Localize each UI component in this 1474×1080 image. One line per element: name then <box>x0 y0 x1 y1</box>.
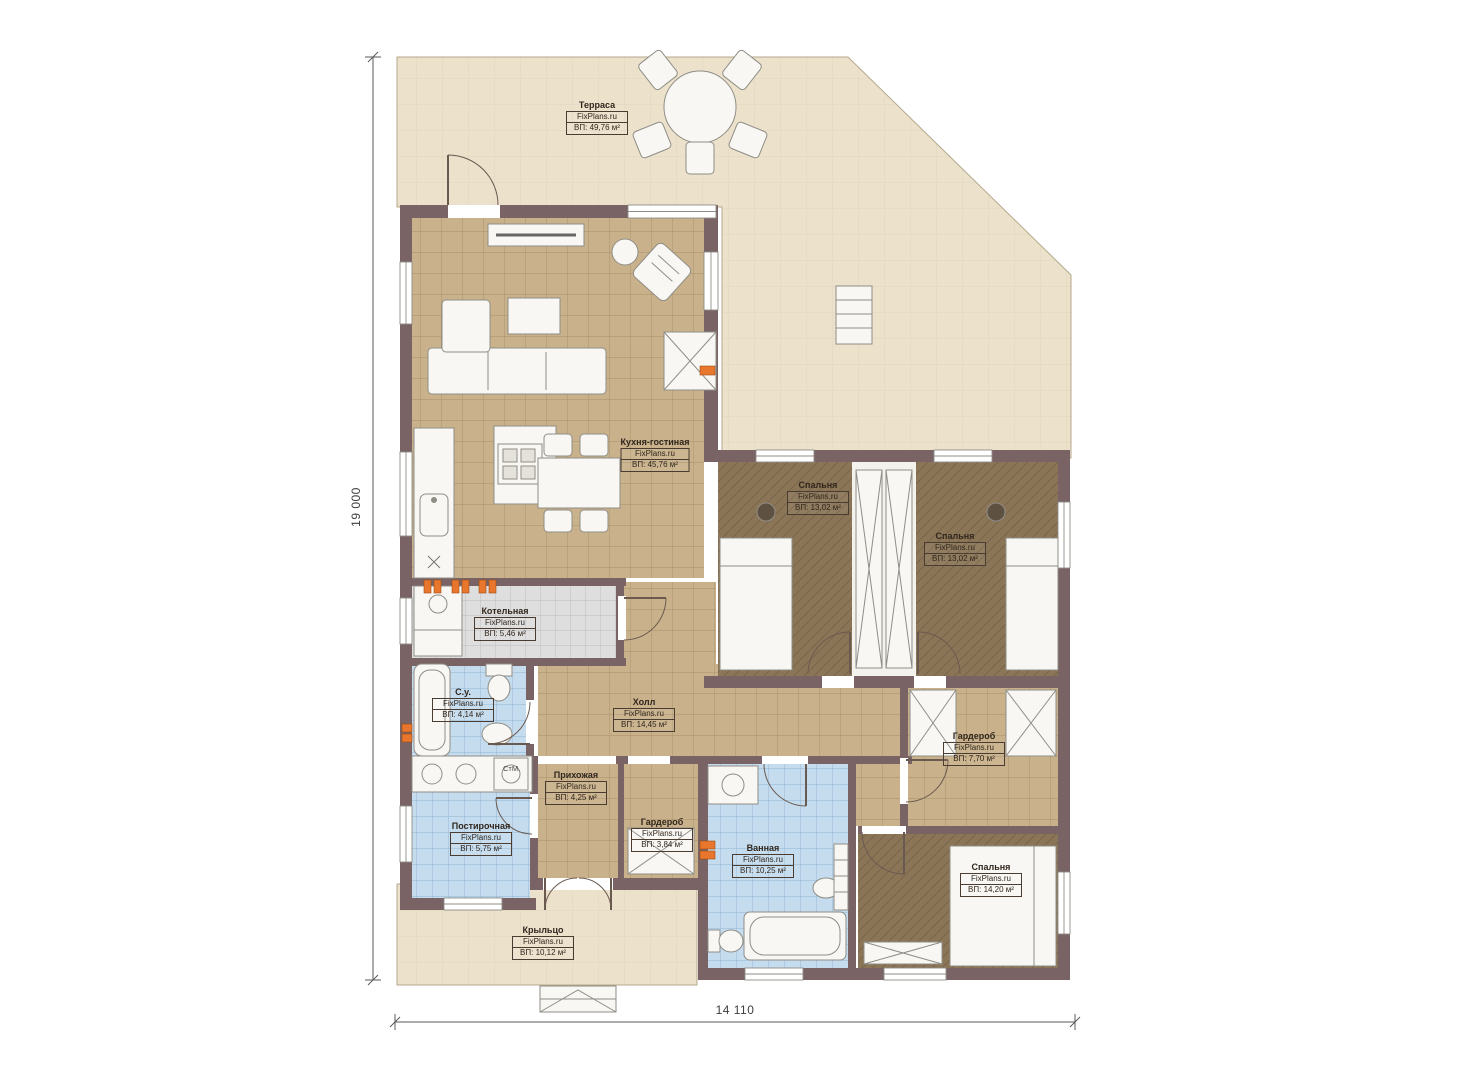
room-area: ВП: 49,76 м² <box>567 123 627 133</box>
watermark: FixPlans.ru <box>622 449 689 460</box>
room-label-wardrobe-main: Гардероб FixPlans.ru ВП: 7,70 м² <box>943 731 1005 766</box>
watermark: FixPlans.ru <box>733 855 793 866</box>
boiler-unit <box>414 586 462 656</box>
room-label-kitchen-living: Кухня-гостиная FixPlans.ru ВП: 45,76 м² <box>621 437 690 472</box>
wardrobe-unit <box>1006 690 1056 756</box>
window <box>400 262 412 324</box>
bed <box>1006 538 1058 670</box>
room-name: Гардероб <box>943 731 1005 741</box>
wall-bath-west <box>698 756 708 970</box>
room-label-boiler: Котельная FixPlans.ru ВП: 5,46 м² <box>474 606 536 641</box>
floor-plan-drawing <box>0 0 1474 1080</box>
room-label-entry: Прихожая FixPlans.ru ВП: 4,25 м² <box>545 770 607 805</box>
room-name: Холл <box>613 697 675 707</box>
room-label-wc: С.у. FixPlans.ru ВП: 4,14 м² <box>432 687 494 722</box>
room-label-hall: Холл FixPlans.ru ВП: 14,45 м² <box>613 697 675 732</box>
room-label-wardrobe-small: Гардероб FixPlans.ru ВП: 3,84 м² <box>631 817 693 852</box>
room-name: Спальня <box>787 480 849 490</box>
floor-passage <box>624 582 716 668</box>
window <box>444 898 502 910</box>
tv-console <box>488 224 584 246</box>
washing-machine-label: СтМ. <box>503 764 520 773</box>
bedside-lamp <box>987 503 1005 521</box>
terrace-steps <box>836 286 872 344</box>
built-in-closet <box>856 470 882 668</box>
room-area: ВП: 13,02 м² <box>925 554 985 564</box>
window <box>756 450 814 462</box>
fireplace <box>664 332 716 390</box>
watermark: FixPlans.ru <box>567 112 627 123</box>
bedroom3-dresser <box>864 942 942 964</box>
room-name: Постирочная <box>450 821 512 831</box>
room-name: Кухня-гостиная <box>621 437 690 447</box>
room-area: ВП: 5,46 м² <box>475 629 535 639</box>
room-area: ВП: 4,14 м² <box>433 710 493 720</box>
watermark: FixPlans.ru <box>632 829 692 840</box>
room-area: ВП: 4,25 м² <box>546 793 606 803</box>
porch-steps <box>540 986 616 1012</box>
room-name: Терраса <box>566 100 628 110</box>
window <box>400 598 412 644</box>
room-name: Ванная <box>732 843 794 853</box>
watermark: FixPlans.ru <box>614 709 674 720</box>
window <box>934 450 992 462</box>
window <box>628 205 716 218</box>
room-name: Прихожая <box>545 770 607 780</box>
coffee-table <box>508 298 560 334</box>
dimension-width: 14 110 <box>716 1003 755 1017</box>
room-name: Гардероб <box>631 817 693 827</box>
room-label-bedroom3: Спальня FixPlans.ru ВП: 14,20 м² <box>960 862 1022 897</box>
room-name: Спальня <box>924 531 986 541</box>
room-name: Крыльцо <box>512 925 574 935</box>
window <box>745 968 803 980</box>
bed <box>720 538 792 670</box>
room-area: ВП: 13,02 м² <box>788 503 848 513</box>
floor-corridor <box>856 764 902 826</box>
room-name: С.у. <box>432 687 494 697</box>
room-area: ВП: 14,20 м² <box>961 885 1021 895</box>
room-label-laundry: Постирочная FixPlans.ru ВП: 5,75 м² <box>450 821 512 856</box>
watermark: FixPlans.ru <box>944 743 1004 754</box>
bath-washer <box>708 766 758 804</box>
window <box>1058 872 1070 934</box>
window <box>1058 502 1070 568</box>
side-table <box>612 239 638 265</box>
wall-bath-east <box>848 764 856 968</box>
room-area: ВП: 45,76 м² <box>622 460 689 470</box>
window <box>704 252 718 310</box>
room-label-porch: Крыльцо FixPlans.ru ВП: 10,12 м² <box>512 925 574 960</box>
watermark: FixPlans.ru <box>433 699 493 710</box>
dimension-height: 19 000 <box>349 487 363 527</box>
bath-toilet <box>708 930 743 952</box>
room-label-bathroom: Ванная FixPlans.ru ВП: 10,25 м² <box>732 843 794 878</box>
room-area: ВП: 7,70 м² <box>944 754 1004 764</box>
room-label-bedroom1: Спальня FixPlans.ru ВП: 13,02 м² <box>787 480 849 515</box>
watermark: FixPlans.ru <box>475 618 535 629</box>
watermark: FixPlans.ru <box>961 874 1021 885</box>
terrace-chair <box>686 142 714 174</box>
floor-plan-page: Терраса FixPlans.ru ВП: 49,76 м² Кухня-г… <box>0 0 1474 1080</box>
window <box>400 452 412 536</box>
window <box>400 806 412 862</box>
watermark: FixPlans.ru <box>451 833 511 844</box>
room-area: ВП: 10,12 м² <box>513 948 573 958</box>
towel-rail <box>834 844 848 910</box>
room-area: ВП: 10,25 м² <box>733 866 793 876</box>
room-area: ВП: 14,45 м² <box>614 720 674 730</box>
laundry-counter <box>412 756 532 792</box>
terrace-table <box>664 71 736 143</box>
watermark: FixPlans.ru <box>925 543 985 554</box>
watermark: FixPlans.ru <box>513 937 573 948</box>
room-area: ВП: 5,75 м² <box>451 844 511 854</box>
window <box>884 968 946 980</box>
room-name: Котельная <box>474 606 536 616</box>
room-label-bedroom2: Спальня FixPlans.ru ВП: 13,02 м² <box>924 531 986 566</box>
watermark: FixPlans.ru <box>788 492 848 503</box>
kitchen-counter <box>414 428 454 578</box>
watermark: FixPlans.ru <box>546 782 606 793</box>
room-name: Спальня <box>960 862 1022 872</box>
bathtub <box>744 912 846 960</box>
room-label-terrace: Терраса FixPlans.ru ВП: 49,76 м² <box>566 100 628 135</box>
wall-bedroom1-bottom <box>704 676 912 688</box>
wc-sink <box>482 723 512 745</box>
built-in-closet <box>886 470 912 668</box>
bedside-lamp <box>757 503 775 521</box>
room-area: ВП: 3,84 м² <box>632 840 692 850</box>
wall-entry-wardrobe <box>618 764 624 878</box>
